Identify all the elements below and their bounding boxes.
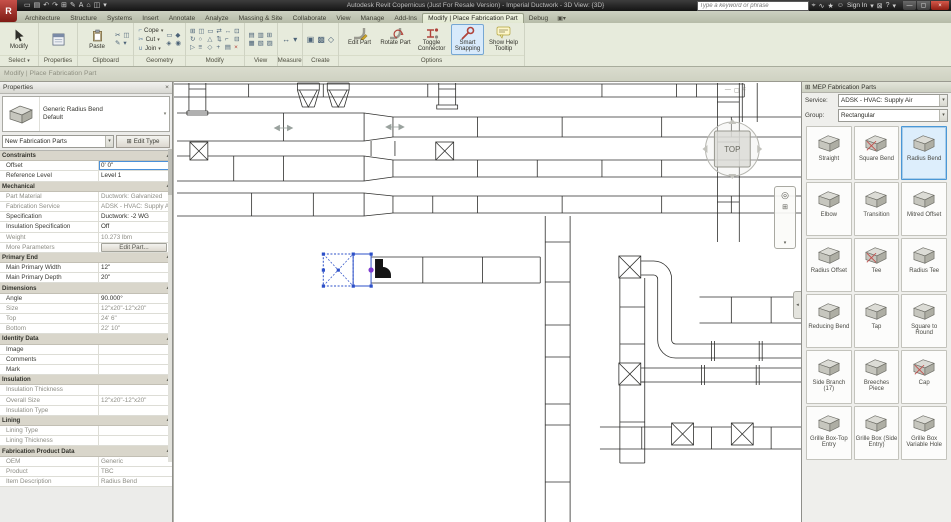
prop-label: Mark (0, 365, 98, 374)
smart-snapping-icon (460, 26, 476, 40)
section-label: Mechanical (2, 183, 35, 190)
connector-point[interactable] (368, 267, 373, 272)
part-item-label: Elbow (820, 212, 838, 218)
customize-qat-icon[interactable]: ▾ (103, 1, 107, 10)
demolish-icon[interactable]: ◈ (166, 40, 172, 47)
part-item-label: Cap (918, 380, 931, 386)
part-item-elbow[interactable]: Elbow (806, 182, 852, 236)
panel-label-create[interactable]: Create (303, 55, 338, 66)
prop-label: Insulation Type (0, 406, 98, 415)
tab-analyze[interactable]: Analyze (200, 14, 233, 23)
match-icon[interactable]: ≡ (198, 44, 204, 51)
reducing-bend-part-icon (814, 300, 844, 322)
dropdown-caret-icon[interactable]: ▾ (157, 36, 160, 44)
ribbon-panel-properties: Properties (39, 23, 78, 66)
ribbon-panel-measure: ↔▾ Measure (278, 23, 303, 66)
wall-icon[interactable]: ▤ (225, 44, 231, 51)
add-icon[interactable]: + (216, 44, 221, 51)
type-name: Generic Radius Bend (43, 106, 161, 114)
prop-row-bottom: Bottom22' 10" (0, 324, 172, 334)
prop-value-insulation-type[interactable] (98, 406, 172, 415)
prop-label: Top (0, 314, 98, 323)
prop-row-more-parameters: More ParametersEdit Part... (0, 243, 172, 253)
tab-modify-place-fabrication-part[interactable]: Modify | Place Fabrication Part (422, 13, 524, 23)
service-value: ADSK - HVAC: Supply Air (839, 97, 939, 104)
user-icon[interactable]: ☺ (837, 2, 844, 10)
part-item-cap[interactable]: Cap (901, 350, 947, 404)
square-bend-part-icon (861, 132, 891, 154)
delete-icon[interactable]: × (234, 44, 239, 51)
save-icon[interactable]: ▤ (34, 1, 41, 10)
cut-icon[interactable]: ✂ (115, 32, 120, 39)
tab-architecture[interactable]: Architecture (20, 14, 65, 23)
move-icon[interactable]: ⇄ (216, 28, 221, 35)
panel-label-clipboard[interactable]: Clipboard (78, 55, 133, 66)
cut-geometry-icon: ✂ (138, 36, 143, 44)
steering-wheel-icon[interactable]: ◎ (781, 190, 789, 201)
type-preview-caret-icon[interactable]: ▾ (161, 111, 169, 117)
part-item-label: Breeches Piece (855, 380, 899, 393)
prop-value-size[interactable]: 12"x20"-12"x20" (98, 304, 172, 313)
view-close-icon[interactable]: × (742, 87, 746, 94)
viewcube-top-face[interactable]: TOP (724, 145, 740, 154)
tab-add-ins[interactable]: Add-Ins (389, 14, 422, 23)
part-item-mitred-offset[interactable]: Mitred Offset (901, 182, 947, 236)
part-item-reducing-bend[interactable]: Reducing Bend (806, 294, 852, 348)
cope-icon: ⌐ (138, 27, 142, 35)
edit-part-button[interactable]: Edit Part (343, 24, 376, 48)
prop-row-insulation-specification: Insulation SpecificationOff (0, 222, 172, 232)
part-item-grille-box-side-entry[interactable]: Grille Box (Side Entry) (854, 406, 900, 460)
prop-row-item-description: Item DescriptionRadius Bend (0, 477, 172, 487)
prop-value-specification[interactable]: Ductwork: -2 WG (98, 212, 172, 221)
grille-box-top-entry-part-icon (814, 412, 844, 434)
prop-row-main-primary-depth: Main Primary Depth20" (0, 273, 172, 283)
selection-grips[interactable] (322, 253, 373, 288)
measure-icon[interactable]: ↔ (282, 36, 290, 43)
sign-in-caret-icon[interactable]: ▾ (870, 2, 874, 10)
quick-access-toolbar: ▭▤↶↷⊞✎A⌂◫▾ (24, 1, 107, 10)
prop-label: Image (0, 345, 98, 354)
part-item-breeches-piece[interactable]: Breeches Piece (854, 350, 900, 404)
prop-value-more-parameters[interactable]: Edit Part... (98, 243, 172, 252)
option-button-label: Toggle Connector (416, 40, 447, 53)
panel-label-view[interactable]: View (245, 55, 277, 66)
breeches-piece-part-icon (861, 356, 891, 378)
section-label: Lining (2, 417, 20, 424)
unpin-icon[interactable]: ⊟ (234, 36, 239, 43)
prop-label: Overall Size (0, 396, 98, 405)
type-sub-name: Default (43, 114, 161, 122)
application-menu-button[interactable]: R (0, 0, 17, 22)
search-input[interactable] (697, 1, 809, 11)
parts-header-icon: ⊞ (805, 83, 810, 91)
prop-section-primary-end[interactable]: Primary End▴ (0, 253, 172, 263)
ribbon-panel-create: ▣▩◇ Create (303, 23, 339, 66)
revit-window: R ▭▤↶↷⊞✎A⌂◫▾ Autodesk Revit Copernicus (… (0, 0, 951, 522)
create-assembly-icon[interactable]: ◇ (328, 36, 334, 43)
switch-window-icon[interactable]: ▨ (267, 40, 273, 47)
part-item-tap[interactable]: Tap (854, 294, 900, 348)
straight-part-icon (814, 132, 844, 154)
prop-value-main-primary-width[interactable]: 12" (98, 263, 172, 272)
wall-joins-icon[interactable]: ◆ (175, 32, 181, 39)
cut-button[interactable]: ✂Cut▾ (138, 36, 163, 44)
print-icon[interactable]: ⊞ (61, 1, 67, 10)
ribbon-panel-options: Edit PartRotate PartToggle ConnectorSmar… (339, 23, 525, 66)
parts-palette-header[interactable]: ⊞ MEP Fabrication Parts (802, 82, 951, 93)
paste-label: Paste (89, 43, 105, 50)
thin-lines-icon[interactable]: ▤ (249, 32, 255, 39)
part-item-label: Square Bend (858, 156, 895, 162)
prop-label: OEM (0, 457, 98, 466)
ribbon-panel-geometry: ⌐Cope▾✂Cut▾∪Join▾ ▭◆◈◉ Geometry (134, 23, 186, 66)
tile-windows-icon[interactable]: ⊞ (267, 32, 273, 39)
mode-bar-text: Modify | Place Fabrication Part (4, 70, 96, 77)
prop-label: Insulation Thickness (0, 385, 98, 394)
option-button-label: Show Help Tooltip (488, 40, 519, 53)
part-item-label: Radius Offset (810, 268, 848, 274)
part-item-side-branch-17[interactable]: Side Branch (17) (806, 350, 852, 404)
toggle-connector-icon (424, 26, 440, 40)
rotate-part-icon (388, 26, 404, 40)
edit-type-button[interactable]: ⊞ Edit Type (116, 135, 170, 148)
part-item-grille-box-top-entry[interactable]: Grille Box-Top Entry (806, 406, 852, 460)
favorites-icon[interactable]: ★ (828, 2, 834, 10)
section-label: Dimensions (2, 285, 37, 292)
part-item-square-to-round[interactable]: Square to Round (901, 294, 947, 348)
tab-view[interactable]: View (331, 14, 355, 23)
switch-windows-icon[interactable]: ◫ (94, 1, 101, 10)
part-item-grille-box-variable-hole[interactable]: Grille Box Variable Hole (901, 406, 947, 460)
prop-value-weight[interactable]: 10.273 lbm (98, 233, 172, 242)
window-buttons: —▢× (903, 1, 949, 10)
maximize-button[interactable]: ▢ (917, 1, 930, 10)
view-minimize-icon[interactable]: — (725, 87, 731, 94)
prop-value-mark[interactable] (98, 365, 172, 374)
drawing-svg: TOP (174, 82, 801, 522)
panel-label-geometry[interactable]: Geometry (134, 55, 185, 66)
copy-icon[interactable]: ◫ (198, 28, 204, 35)
ribbon-panel-view: ▤▥⊞▦▧▨ View (245, 23, 278, 66)
prop-value-part-material[interactable]: Ductwork: Galvanized (98, 192, 172, 201)
zoom-icon[interactable]: ⊞ (782, 203, 788, 211)
prop-row-weight: Weight10.273 lbm (0, 233, 172, 243)
radius-bend-part-icon (909, 132, 939, 154)
filter-combo-caret-icon[interactable]: ▾ (105, 136, 113, 147)
join-icon: ∪ (138, 45, 143, 53)
prop-value-angle[interactable]: 90.000° (98, 294, 172, 303)
subscription-center-icon[interactable]: ∿ (819, 2, 825, 10)
pin-icon[interactable]: ⊡ (234, 28, 239, 35)
exchange-apps-icon[interactable]: ⊠ (877, 2, 883, 10)
properties-close-icon[interactable]: × (165, 84, 169, 91)
prop-value-product[interactable]: TBC (98, 467, 172, 476)
copy-icon[interactable]: ◫ (123, 32, 129, 39)
properties-scrollbar[interactable] (168, 149, 172, 462)
offset-icon[interactable]: ▭ (207, 28, 213, 35)
tab-insert[interactable]: Insert (137, 14, 164, 23)
panel-collapse-tab[interactable]: ◂ (793, 291, 801, 319)
text-icon[interactable]: A (79, 1, 84, 10)
match-type-icon[interactable]: ✎ (115, 40, 120, 47)
panel-label-modify[interactable]: Modify (186, 55, 244, 66)
part-item-transition[interactable]: Transition (854, 182, 900, 236)
join-geometry-icon[interactable]: ◇ (207, 44, 213, 51)
open-icon[interactable]: ▭ (24, 1, 31, 10)
service-caret-icon[interactable]: ▾ (939, 95, 947, 106)
type-selector-preview[interactable]: Generic Radius Bend Default ▾ (2, 96, 170, 132)
option-button-label: Rotate Part (380, 40, 410, 46)
parts-palette-title: MEP Fabrication Parts (812, 84, 876, 91)
show-help-tooltip-button[interactable]: Show Help Tooltip (487, 24, 520, 55)
prop-row-angle: Angle90.000° (0, 294, 172, 304)
prop-row-insulation-thickness: Insulation Thickness (0, 385, 172, 395)
prop-row-comments: Comments (0, 355, 172, 365)
measure-caret-icon[interactable]: ▾ (293, 36, 297, 43)
part-item-radius-tee[interactable]: Radius Tee (901, 238, 947, 292)
group-label: Group: (805, 112, 835, 119)
beam-joins-icon[interactable]: ▭ (166, 32, 172, 39)
geometry-item-label: Cut (146, 36, 156, 44)
service-label: Service: (805, 97, 835, 104)
tab-systems[interactable]: Systems (102, 14, 137, 23)
part-item-square-bend[interactable]: Square Bend (854, 126, 900, 180)
infocenter: ⌖∿★☺ Sign In ▾ ⊠ ? ▾ —▢× (697, 1, 951, 11)
part-item-radius-offset[interactable]: Radius Offset (806, 238, 852, 292)
prop-label: Offset (0, 161, 98, 170)
sign-in-button[interactable]: Sign In (847, 2, 867, 9)
cascade-icon[interactable]: ▦ (249, 40, 255, 47)
viewcube[interactable]: TOP (702, 119, 762, 179)
prop-section-insulation[interactable]: Insulation▴ (0, 375, 172, 385)
section-label: Identity Data (2, 335, 39, 342)
prop-value-overall-size[interactable]: 12"x20"-12"x20" (98, 396, 172, 405)
paint-icon[interactable]: ◉ (175, 40, 181, 47)
panel-label-properties[interactable]: Properties (39, 55, 77, 66)
part-item-label: Radius Bend (906, 156, 942, 162)
prop-row-image: Image (0, 345, 172, 355)
minimize-button[interactable]: — (903, 1, 916, 10)
create-group-icon[interactable]: ▩ (317, 36, 325, 43)
hidden-windows-icon[interactable]: ▥ (258, 32, 264, 39)
service-dropdown[interactable]: ADSK - HVAC: Supply Air ▾ (838, 94, 948, 107)
group-dropdown[interactable]: Rectangular ▾ (838, 109, 948, 122)
prop-label: Bottom (0, 324, 98, 333)
properties-icon (52, 33, 65, 46)
prop-section-dimensions[interactable]: Dimensions▴ (0, 283, 172, 293)
prop-row-part-material: Part MaterialDuctwork: Galvanized (0, 192, 172, 202)
prop-row-reference-level: Reference LevelLevel 1 (0, 171, 172, 181)
part-item-label: Straight (817, 156, 840, 162)
prop-label: Product (0, 467, 98, 476)
dropdown-caret-icon[interactable]: ▾ (158, 45, 161, 53)
panel-label-select[interactable]: Select ▾ (0, 55, 38, 66)
trim-icon[interactable]: ⌐ (225, 36, 231, 43)
rotate-part-button[interactable]: Rotate Part (379, 24, 412, 48)
prop-row-insulation-type: Insulation Type (0, 406, 172, 416)
prop-section-identity-data[interactable]: Identity Data▴ (0, 334, 172, 344)
help-icon[interactable]: ? (886, 2, 890, 9)
edit-type-icon: ⊞ (127, 138, 132, 145)
modify-button[interactable]: Modify (4, 29, 34, 50)
prop-label: Fabrication Service (0, 202, 98, 211)
prop-section-constraints[interactable]: Constraints▴ (0, 151, 172, 161)
prop-row-overall-size: Overall Size12"x20"-12"x20" (0, 396, 172, 406)
prop-label: Lining Type (0, 426, 98, 435)
paste-button[interactable]: Paste (82, 29, 112, 50)
prop-value-insulation-thickness[interactable] (98, 385, 172, 394)
part-item-label: Square to Round (902, 324, 946, 337)
split-icon[interactable]: ⇅ (216, 36, 221, 43)
create-similar-icon[interactable]: ▣ (307, 36, 315, 43)
panel-label-options[interactable]: Options (339, 55, 524, 66)
smart-snapping-button[interactable]: Smart Snapping (451, 24, 484, 55)
prop-row-lining-thickness: Lining Thickness (0, 436, 172, 446)
tee-part-icon (861, 244, 891, 266)
prop-row-oem: OEMGeneric (0, 457, 172, 467)
placement-cursor-preview (375, 259, 391, 278)
ribbon-panel-modify: ⊞◫▭⇄↔⊡↻○△⇅⌐⊟▷≡◇+▤× Modify (186, 23, 245, 66)
prop-value-oem[interactable]: Generic (98, 457, 172, 466)
part-item-straight[interactable]: Straight (806, 126, 852, 180)
ribbon: Modify Select ▾ Properties (0, 23, 951, 67)
properties-palette-header[interactable]: Properties × (0, 82, 172, 94)
default-3d-view-icon[interactable]: ⌂ (86, 1, 90, 10)
prop-row-specification: SpecificationDuctwork: -2 WG (0, 212, 172, 222)
ribbon-panel-select: Modify Select ▾ (0, 23, 39, 66)
prop-value-lining-thickness[interactable] (98, 436, 172, 445)
part-item-label: Transition (862, 212, 890, 218)
prop-value-main-primary-depth[interactable]: 20" (98, 273, 172, 282)
cope-button[interactable]: ⌐Cope▾ (138, 27, 163, 35)
prop-row-size: Size12"x20"-12"x20" (0, 304, 172, 314)
tab-manage[interactable]: Manage (356, 14, 390, 23)
properties-table: Constraints▴Offset0' 0"Reference LevelLe… (0, 150, 172, 487)
prop-value-insulation-specification[interactable]: Off (98, 222, 172, 231)
prop-value-top[interactable]: 24' 6" (98, 314, 172, 323)
scale-icon[interactable]: △ (207, 36, 213, 43)
transition-part-icon (861, 188, 891, 210)
prop-row-lining-type: Lining Type (0, 426, 172, 436)
window-title: Autodesk Revit Copernicus (Just For Resa… (347, 2, 604, 9)
prop-value-item-description[interactable]: Radius Bend (98, 477, 172, 486)
tab-annotate[interactable]: Annotate (164, 14, 200, 23)
prop-section-mechanical[interactable]: Mechanical▴ (0, 182, 172, 192)
annotate-icon[interactable]: ✎ (70, 1, 76, 10)
view-restore-icon[interactable]: ▢ (734, 87, 740, 94)
array-icon[interactable]: ○ (198, 36, 204, 43)
prop-label: Angle (0, 294, 98, 303)
cap-part-icon (909, 356, 939, 378)
filter-combo-value: New Fabrication Parts (3, 138, 105, 145)
mitred-offset-part-icon (909, 188, 939, 210)
infocenter-icons: ⌖∿★☺ (812, 2, 844, 10)
redo-icon[interactable]: ↷ (52, 1, 58, 10)
navigation-bar[interactable]: ◎⊞▾ (774, 186, 796, 249)
grille-box-variable-hole-part-icon (909, 412, 939, 434)
prop-value-bottom[interactable]: 22' 10" (98, 324, 172, 333)
join-button[interactable]: ∪Join▾ (138, 45, 163, 53)
part-item-tee[interactable]: Tee (854, 238, 900, 292)
rotate-icon[interactable]: ↻ (190, 36, 195, 43)
toggle-connector-button[interactable]: Toggle Connector (415, 24, 448, 55)
group-value: Rectangular (839, 112, 939, 119)
prop-section-lining[interactable]: Lining▴ (0, 416, 172, 426)
prop-value-image[interactable] (98, 345, 172, 354)
prop-label: More Parameters (0, 243, 98, 252)
part-item-label: Side Branch (17) (807, 380, 851, 393)
geometry-item-label: Join (145, 45, 156, 53)
prop-label: Reference Level (0, 171, 98, 180)
tab-massing-site[interactable]: Massing & Site (234, 14, 288, 23)
section-label: Fabrication Product Data (2, 448, 74, 455)
prop-value-comments[interactable] (98, 355, 172, 364)
paste-caret-icon[interactable]: ▾ (123, 40, 129, 47)
properties-button[interactable] (43, 33, 73, 46)
align-icon[interactable]: ⊞ (190, 28, 195, 35)
prop-value-fabrication-service[interactable]: ADSK - HVAC: Supply Air (98, 202, 172, 211)
tab-debug[interactable]: Debug (524, 14, 553, 23)
panel-label-measure[interactable]: Measure (278, 55, 302, 66)
selected-fabrication-part[interactable] (322, 253, 374, 288)
radius-offset-part-icon (814, 244, 844, 266)
prop-value-reference-level[interactable]: Level 1 (98, 171, 172, 180)
prop-row-product: ProductTBC (0, 467, 172, 477)
extend-icon[interactable]: ▷ (190, 44, 195, 51)
prop-section-fabrication-product-data[interactable]: Fabrication Product Data▴ (0, 446, 172, 456)
dropdown-caret-icon[interactable]: ▾ (161, 27, 164, 35)
ribbon-display-toggle-icon[interactable]: ▣▾ (557, 15, 566, 23)
search-button-icon[interactable]: ⌖ (812, 2, 816, 10)
show-help-tooltip-icon (496, 26, 512, 40)
mep-fabrication-parts-palette: ⊞ MEP Fabrication Parts Service: ADSK - … (801, 82, 951, 522)
option-button-label: Smart Snapping (452, 40, 483, 53)
tab-collaborate[interactable]: Collaborate (288, 14, 332, 23)
undo-icon[interactable]: ↶ (43, 1, 49, 10)
prop-label: Item Description (0, 477, 98, 486)
prop-label: Weight (0, 233, 98, 242)
type-preview-icon (3, 97, 40, 131)
section-label: Constraints (2, 152, 36, 159)
prop-label: Specification (0, 212, 98, 221)
view-window-controls: —▢× (725, 87, 746, 94)
prop-label: Part Material (0, 192, 98, 201)
grille-box-side-entry-part-icon (861, 412, 891, 434)
drawing-area[interactable]: TOP —▢× ◎⊞▾ ◂ (173, 82, 801, 522)
group-caret-icon[interactable]: ▾ (939, 110, 947, 121)
mode-bar: Modify | Place Fabrication Part (0, 67, 951, 82)
square-to-round-part-icon (909, 300, 939, 322)
part-item-label: Grille Box (Side Entry) (855, 436, 899, 449)
properties-palette: Properties × Generic Radius Bend Default… (0, 82, 173, 522)
prop-value-lining-type[interactable] (98, 426, 172, 435)
part-item-radius-bend[interactable]: Radius Bend (901, 126, 947, 180)
part-item-label: Radius Tee (908, 268, 940, 274)
prop-value-offset[interactable]: 0' 0" (98, 161, 172, 170)
tab-structure[interactable]: Structure (65, 14, 102, 23)
filter-combo[interactable]: New Fabrication Parts ▾ (2, 135, 114, 148)
close-button[interactable]: × (931, 1, 949, 10)
help-caret-icon[interactable]: ▾ (892, 2, 896, 10)
edit-part-button[interactable]: Edit Part... (101, 243, 167, 252)
modify-cursor-icon (14, 29, 25, 42)
section-label: Primary End (2, 254, 38, 261)
navbar-more-icon[interactable]: ▾ (784, 240, 787, 246)
user-interface-icon[interactable]: ▧ (258, 40, 264, 47)
mirror-icon[interactable]: ↔ (225, 28, 231, 35)
prop-label: Size (0, 304, 98, 313)
